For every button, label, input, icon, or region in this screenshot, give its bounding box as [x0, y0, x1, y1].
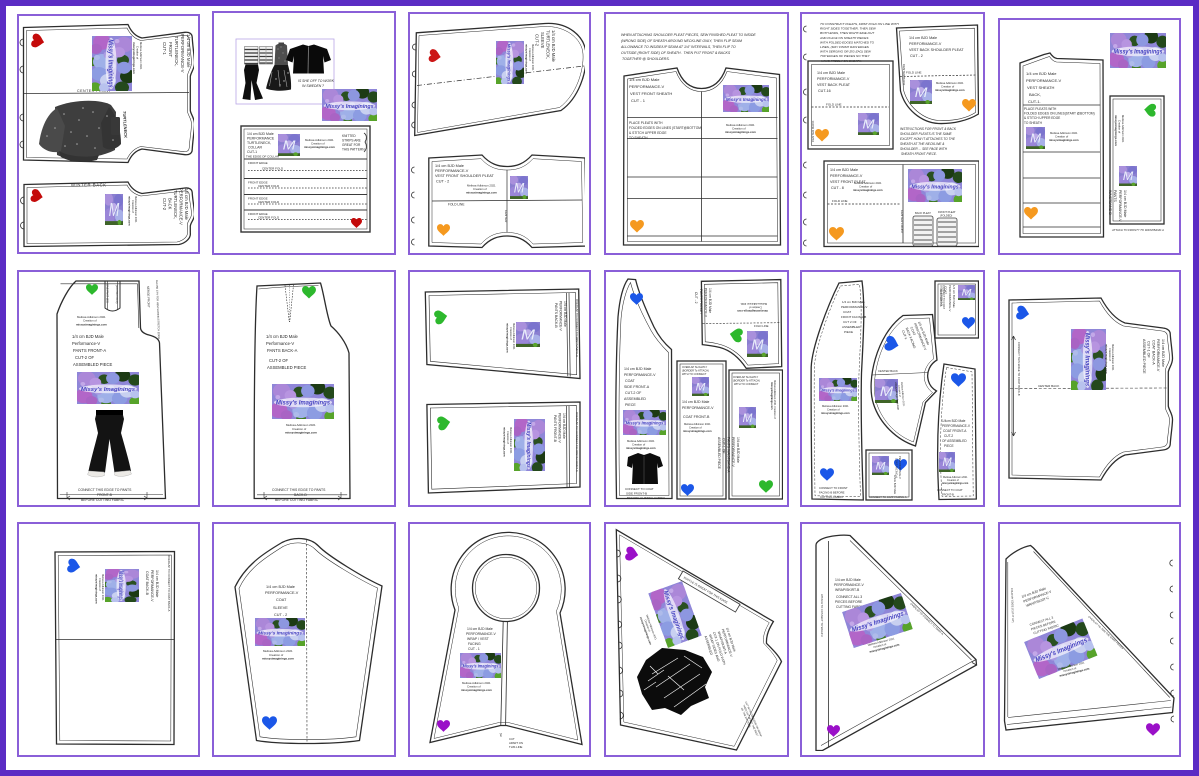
- svg-text:missysimaginings.com: missysimaginings.com: [132, 42, 136, 74]
- svg-text:INSTRUCTIONS FOR FRONT & BACK: INSTRUCTIONS FOR FRONT & BACK: [900, 127, 957, 131]
- svg-text:Creation of: Creation of: [749, 306, 762, 310]
- svg-text:ONE PANT LEG: ONE PANT LEG: [106, 284, 110, 303]
- svg-text:missysimaginings.com: missysimaginings.com: [127, 196, 131, 226]
- svg-text:FOLD LINE: FOLD LINE: [832, 199, 848, 203]
- svg-text:CUT-2: CUT-2: [535, 34, 540, 47]
- svg-text:Melissa Adkinson 2021: Melissa Adkinson 2021: [1121, 115, 1125, 143]
- svg-text:FOLD LINE: FOLD LINE: [906, 71, 922, 75]
- svg-text:Creation of: Creation of: [632, 442, 645, 446]
- svg-text:STRIPS ARE: STRIPS ARE: [342, 139, 361, 143]
- svg-text:CUT - 1: CUT - 1: [468, 647, 480, 651]
- svg-text:PERFORMANCE-V: PERFORMANCE-V: [817, 77, 850, 81]
- svg-text:Creation of: Creation of: [506, 431, 510, 444]
- svg-text:missysimaginings.com: missysimaginings.com: [770, 382, 773, 410]
- svg-text:PLACE PLEATS WITH: PLACE PLEATS WITH: [1024, 107, 1057, 111]
- svg-text:FRONT-B: FRONT-B: [97, 493, 113, 497]
- svg-text:missysimaginings.com: missysimaginings.com: [461, 688, 492, 692]
- svg-text:Creation of: Creation of: [1108, 348, 1112, 361]
- svg-text:PIECES BEFORE: PIECES BEFORE: [835, 600, 863, 604]
- svg-text:BACK: BACK: [168, 198, 173, 210]
- svg-text:CUT-2 OF: CUT-2 OF: [75, 355, 95, 360]
- svg-text:PERFORMANCE-V: PERFORMANCE-V: [898, 456, 902, 479]
- svg-text:PERFORMANCE-V: PERFORMANCE-V: [682, 406, 714, 410]
- svg-text:VEST BACK PLEAT: VEST BACK PLEAT: [817, 83, 851, 87]
- svg-text:CUT-16: CUT-16: [818, 89, 831, 93]
- svg-text:1/4 cm BJD Male: 1/4 cm BJD Male: [1123, 190, 1127, 217]
- svg-text:COAT BACK-A: COAT BACK-A: [1151, 340, 1155, 365]
- svg-text:BOTH ENDS, THEN RIGHT-SIDE-OUT: BOTH ENDS, THEN RIGHT-SIDE-OUT: [820, 31, 875, 35]
- svg-text:1/4 cm BJD Male: 1/4 cm BJD Male: [1026, 71, 1057, 76]
- svg-text:Creation of: Creation of: [941, 84, 954, 88]
- svg-text:CENTER FOLD: CENTER FOLD: [258, 184, 280, 188]
- svg-text:IN SWEDEN ?: IN SWEDEN ?: [302, 84, 324, 88]
- svg-text:missysimaginings.com: missysimaginings.com: [94, 574, 98, 604]
- svg-text:missysimaginings.com: missysimaginings.com: [1049, 138, 1079, 142]
- svg-text:1/4 cm BJD Male: 1/4 cm BJD Male: [563, 301, 567, 327]
- svg-text:WHEN ATTACHING SHOULDER PLEAT: WHEN ATTACHING SHOULDER PLEAT PIECES, SE…: [621, 33, 756, 37]
- svg-text:WITH FOLDED EDGES MATCHED TO: WITH FOLDED EDGES MATCHED TO: [820, 40, 875, 44]
- svg-text:FOLDED EDGES ON LINES (START@B: FOLDED EDGES ON LINES (START@BOTTOM): [629, 126, 702, 130]
- svg-text:SHOULDER ... SEE PAGE WITH: SHOULDER ... SEE PAGE WITH: [900, 147, 948, 151]
- svg-text:PERFORMANCE-V: PERFORMANCE-V: [629, 84, 664, 89]
- svg-text:OVERLAP SLIGHTLY: OVERLAP SLIGHTLY: [733, 375, 759, 379]
- svg-text:Creation of: Creation of: [827, 407, 840, 411]
- svg-text:FRONT: FRONT: [168, 42, 173, 57]
- svg-text:ATTACH TO CONNECT TO WRAP-: ATTACH TO CONNECT TO WRAP-C: [820, 594, 824, 637]
- svg-text:COAT BACK-B: COAT BACK-B: [145, 571, 149, 596]
- svg-text:CUT-1 OF: CUT-1 OF: [1147, 341, 1151, 359]
- svg-text:RIGHT SIDES TOGETHER, THEN SEW: RIGHT SIDES TOGETHER, THEN SEW: [820, 27, 877, 31]
- svg-text:RUFFLE IS GREAT FOR THIS EDGE: RUFFLE IS GREAT FOR THIS EDGE: [683, 576, 728, 605]
- svg-text:FRONT-B: FRONT-B: [942, 492, 954, 496]
- svg-text:missysimaginings.com: missysimaginings.com: [683, 429, 712, 433]
- svg-text:1/4 cm BJD Male: 1/4 cm BJD Male: [817, 71, 845, 75]
- svg-text:OVERLAP TO CONNECT TO PANT: OVERLAP TO CONNECT TO PANTS FRONT-A: [575, 412, 579, 472]
- svg-text:BEFORE CUTTING FABRIC: BEFORE CUTTING FABRIC: [627, 496, 666, 500]
- svg-text:ASSEMBLED PIECE: ASSEMBLED PIECE: [1142, 339, 1146, 374]
- svg-text:PANTS: PANTS: [1113, 190, 1117, 202]
- svg-text:(BORDER To ATTACH): (BORDER To ATTACH): [733, 379, 760, 383]
- svg-text:WRAP / VEST: WRAP / VEST: [467, 637, 489, 641]
- svg-text:FOLD LINE: FOLD LINE: [826, 103, 842, 107]
- svg-text:PERFORMANCE-V: PERFORMANCE-V: [841, 305, 867, 309]
- svg-text:CUT-1: CUT-1: [247, 150, 257, 154]
- svg-text:1/4 cm BJD Male: 1/4 cm BJD Male: [562, 413, 566, 439]
- svg-text:BACK PLEAT: BACK PLEAT: [915, 211, 931, 215]
- svg-text:CONNECT TO POCKET TO SIDE OF P: CONNECT TO POCKET TO SIDE OF PANTS: [783, 284, 784, 333]
- svg-text:COAT FRONT-B: COAT FRONT-B: [683, 415, 710, 419]
- svg-text:PANTS FRONT-A: PANTS FRONT-A: [73, 348, 106, 353]
- svg-text:CONNECT THIS EDGE TO PANTS: CONNECT THIS EDGE TO PANTS: [78, 488, 132, 492]
- svg-text:WITH TO CONNECT: WITH TO CONNECT: [682, 372, 707, 376]
- svg-text:CENTER FRONT: CENTER FRONT: [900, 210, 904, 234]
- svg-text:1/4 cm BJD Male: 1/4 cm BJD Male: [1161, 339, 1165, 367]
- svg-text:CENTER BACK: CENTER BACK: [902, 64, 906, 85]
- svg-text:Creation of: Creation of: [859, 184, 872, 188]
- svg-text:CUT-2 OF: CUT-2 OF: [269, 358, 289, 363]
- svg-text:1/4 cm BJD Male: 1/4 cm BJD Male: [551, 30, 556, 63]
- svg-text:CUT-2 OF: CUT-2 OF: [625, 391, 642, 395]
- svg-text:THIS PATTERN: THIS PATTERN: [342, 148, 365, 152]
- svg-text:OF ASSEMBLED: OF ASSEMBLED: [942, 439, 967, 443]
- svg-text:missysimaginings.com: missysimaginings.com: [304, 145, 335, 149]
- svg-text:missysimaginings.com: missysimaginings.com: [853, 188, 883, 192]
- svg-text:Melissa Adkinson 2021: Melissa Adkinson 2021: [627, 439, 655, 443]
- svg-text:(WRONG SIDE) OF SHEATH AROUND: (WRONG SIDE) OF SHEATH AROUND NECKLINE O…: [621, 39, 742, 43]
- svg-text:missysimaginings.com: missysimaginings.com: [1114, 115, 1118, 146]
- svg-text:1/4 cm BJD Male: 1/4 cm BJD Male: [624, 367, 651, 371]
- svg-text:PERFORMANCE-V: PERFORMANCE-V: [265, 591, 299, 595]
- svg-text:BEFORE CUTTING FABRIC: BEFORE CUTTING FABRIC: [81, 498, 125, 501]
- svg-text:THE EDGE OF COLLAR: THE EDGE OF COLLAR: [246, 155, 280, 159]
- svg-text:PERFORMANCE-V: PERFORMANCE-V: [1026, 78, 1061, 83]
- svg-text:missysimaginings.com: missysimaginings.com: [466, 191, 497, 195]
- svg-text:1/4 cm BJD Male: 1/4 cm BJD Male: [842, 300, 865, 304]
- svg-text:SLEEVE: SLEEVE: [540, 32, 545, 49]
- svg-text:Melissa Adkinson 2021: Melissa Adkinson 2021: [740, 302, 767, 306]
- svg-text:BACK,: BACK,: [1029, 92, 1041, 97]
- svg-text:WRAP/SKIRT-B: WRAP/SKIRT-B: [835, 588, 860, 592]
- svg-text:TURTLENECK,: TURTLENECK,: [247, 141, 271, 145]
- svg-text:VEST BACK SHOULDER PLEAT: VEST BACK SHOULDER PLEAT: [909, 48, 964, 52]
- svg-text:TURTLENECK,: TURTLENECK,: [174, 36, 179, 66]
- svg-text:CENTER: CENTER: [504, 210, 508, 223]
- svg-text:1/4 cm BJD Male: 1/4 cm BJD Male: [708, 288, 712, 313]
- svg-text:WITH SERGING OR ZIG-ZAG) SEW: WITH SERGING OR ZIG-ZAG) SEW: [820, 50, 872, 54]
- svg-text:ASSEMBLED: ASSEMBLED: [624, 397, 646, 401]
- svg-text:missysimaginings.com: missysimaginings.com: [524, 44, 528, 74]
- svg-text:1/4cm BJD Male: 1/4cm BJD Male: [942, 419, 966, 423]
- svg-text:(LOOSE FOLD): (LOOSE FOLD): [115, 285, 119, 303]
- svg-text:PERFORMANCE-V: PERFORMANCE-V: [466, 632, 497, 636]
- svg-text:CENTER FOLD: CENTER FOLD: [262, 167, 284, 171]
- svg-text:EXCEPT HOW IT ATTACHES TO THE: EXCEPT HOW IT ATTACHES TO THE: [900, 137, 956, 141]
- svg-text:1/4 cm BJD Male: 1/4 cm BJD Male: [186, 34, 191, 68]
- svg-text:CUTTING FABRIC: CUTTING FABRIC: [820, 495, 843, 499]
- svg-text:ASSEMBLED PIECE: ASSEMBLED PIECE: [267, 365, 307, 370]
- svg-text:1/4 cm BJD Male: 1/4 cm BJD Male: [629, 77, 660, 82]
- svg-text:FACING-B BEFORE: FACING-B BEFORE: [819, 490, 845, 494]
- svg-text:missysimaginings.com: missysimaginings.com: [502, 427, 506, 457]
- svg-text:CENTER BACK: CENTER BACK: [1038, 384, 1059, 388]
- svg-text:CENTER FOLD: CENTER FOLD: [258, 200, 280, 204]
- svg-text:CONNECT ALL 3: CONNECT ALL 3: [836, 595, 862, 599]
- svg-text:1/4 cm BJD Male: 1/4 cm BJD Male: [909, 36, 937, 40]
- svg-text:ALLOW 10% FOR HEM SHRINK/STRET: ALLOW 10% FOR HEM SHRINK/STRETCH EDGE: [155, 280, 161, 340]
- svg-text:PANTS FRONT-B: PANTS FRONT-B: [553, 415, 557, 443]
- svg-text:KNITTED: KNITTED: [342, 134, 356, 138]
- svg-text:SHOULDER PLEATS IS THE SAME: SHOULDER PLEATS IS THE SAME: [900, 132, 953, 136]
- svg-text:CUT-2: CUT-2: [944, 434, 953, 438]
- svg-text:WITH TO CONNECT: WITH TO CONNECT: [734, 382, 759, 386]
- svg-text:missysimaginings.com: missysimaginings.com: [725, 130, 756, 134]
- svg-text:1/4 cm BJD Male: 1/4 cm BJD Male: [247, 132, 274, 136]
- svg-text:SHEATH FRONT PIECE.: SHEATH FRONT PIECE.: [901, 152, 937, 156]
- svg-text:FRONT FACING-B: FRONT FACING-B: [841, 315, 866, 319]
- svg-text:CUT-1.: CUT-1.: [1028, 99, 1041, 104]
- svg-text:PERFORMANCE-V: PERFORMANCE-V: [1156, 339, 1160, 372]
- svg-text:TOP EDGES OF PIECES SO THEY: TOP EDGES OF PIECES SO THEY: [820, 54, 871, 58]
- svg-text:missysimaginings.com: missysimaginings.com: [1104, 344, 1108, 374]
- svg-text:Melissa Adkinson 2021: Melissa Adkinson 2021: [1050, 131, 1078, 135]
- svg-text:OVERLAP TO CONNECT TO SKIR: OVERLAP TO CONNECT TO SKIRT-A: [909, 602, 944, 636]
- svg-text:& STITCH UPPER EDGE: & STITCH UPPER EDGE: [629, 131, 667, 135]
- svg-text:TURTLENECK: TURTLENECK: [122, 111, 128, 139]
- svg-text:CUT - 2: CUT - 2: [910, 54, 923, 58]
- svg-text:FOLDED EDGES ON LINES(START @B: FOLDED EDGES ON LINES(START @BOTTOM): [1024, 112, 1095, 116]
- svg-text:1/4 cm BJD Male: 1/4 cm BJD Male: [266, 585, 295, 589]
- svg-text:ASSEMBLED PIECE: ASSEMBLED PIECE: [73, 362, 113, 367]
- svg-text:PERFORMANCE: PERFORMANCE: [247, 137, 275, 141]
- svg-text:SERGE FRONT: SERGE FRONT: [146, 286, 151, 308]
- svg-text:1/4 cm BJD Male: 1/4 cm BJD Male: [736, 437, 740, 463]
- svg-text:Melissa Adkinson 2021: Melissa Adkinson 2021: [139, 42, 143, 70]
- svg-text:FRONT PLEAT: FRONT PLEAT: [938, 210, 956, 214]
- svg-text:missysimaginings.com: missysimaginings.com: [737, 309, 768, 313]
- svg-text:TURTLENECK,: TURTLENECK,: [173, 190, 178, 219]
- svg-text:CUT-2: CUT-2: [162, 198, 167, 211]
- svg-text:PERFORMANCE-V: PERFORMANCE-V: [558, 301, 562, 332]
- svg-text:OVERLAP TO CONNECT TO COAT: OVERLAP TO CONNECT TO COAT BACK-A: [167, 555, 171, 611]
- svg-text:PERFORMANCE-V: PERFORMANCE-V: [830, 174, 863, 178]
- svg-text:SIDE FRONT-B: SIDE FRONT-B: [939, 285, 943, 306]
- svg-text:BEFORE CUTTING FABRIC: BEFORE CUTTING FABRIC: [275, 498, 319, 501]
- svg-text:ALLOWANCE TO INSIDE/UP SEAM AT: ALLOWANCE TO INSIDE/UP SEAM AT 1/4" INTE…: [620, 45, 736, 49]
- svg-text:missysimaginings.com: missysimaginings.com: [942, 482, 968, 485]
- svg-text:CUT - 2: CUT - 2: [274, 613, 287, 617]
- svg-text:CONNECT THIS EDGE TO COAT BA: CONNECT THIS EDGE TO COAT BACK-B: [1017, 342, 1021, 396]
- svg-text:Melissa Adkinson 2021: Melissa Adkinson 2021: [684, 422, 711, 426]
- svg-text:TO SHEATH: TO SHEATH: [629, 136, 648, 140]
- svg-text:WAISTBAND-B: WAISTBAND-B: [1108, 190, 1112, 215]
- svg-text:PERFORMANCE-V: PERFORMANCE-V: [942, 424, 971, 428]
- svg-text:CONNECT THIS EDGE TO PANTS: CONNECT THIS EDGE TO PANTS: [272, 488, 326, 492]
- svg-text:Performance-V: Performance-V: [266, 341, 294, 346]
- svg-text:PERFORMANCE-V: PERFORMANCE-V: [180, 34, 185, 73]
- svg-text:SLEEVE: SLEEVE: [273, 606, 288, 610]
- svg-text:& STITCH UPPER EDGE: & STITCH UPPER EDGE: [1024, 116, 1060, 120]
- svg-text:PLACE PLEATS WITH: PLACE PLEATS WITH: [629, 121, 663, 125]
- svg-text:TURTLENECK,: TURTLENECK,: [546, 30, 551, 59]
- svg-text:WINTER BACK: WINTER BACK: [71, 183, 107, 188]
- svg-text:SIDE FRONT-B: SIDE FRONT-B: [626, 491, 647, 495]
- svg-text:1/4 cm BJD Male: 1/4 cm BJD Male: [72, 334, 105, 339]
- svg-text:missysimaginings.com: missysimaginings.com: [285, 431, 317, 435]
- svg-text:FOLD LINE: FOLD LINE: [754, 324, 769, 328]
- svg-text:PERFORMANCE-V: PERFORMANCE-V: [1118, 190, 1122, 222]
- svg-text:missysimaginings.com: missysimaginings.com: [505, 323, 509, 353]
- svg-text:CUT 2 OF: CUT 2 OF: [843, 320, 857, 324]
- svg-text:FOLD LINE: FOLD LINE: [448, 203, 464, 207]
- svg-text:CUT - 8: CUT - 8: [831, 186, 844, 190]
- svg-text:COAT FRONT-A: COAT FRONT-A: [943, 429, 967, 433]
- svg-text:PIECE: PIECE: [625, 403, 636, 407]
- svg-text:1/4 cm BJD Male: 1/4 cm BJD Male: [435, 164, 464, 168]
- svg-text:1/4 cm BJD Male: 1/4 cm BJD Male: [266, 334, 299, 339]
- svg-text:CENTER BACK: CENTER BACK: [811, 121, 815, 142]
- svg-text:missysimaginings.com: missysimaginings.com: [626, 446, 656, 450]
- svg-text:VEST FRONT SHOULDER PLEAT: VEST FRONT SHOULDER PLEAT: [435, 174, 495, 178]
- svg-text:OVERLAP TO CONNECT TO PANT: OVERLAP TO CONNECT TO PANTS BACK-A: [575, 299, 579, 357]
- svg-text:PERFORMANCE-V: PERFORMANCE-V: [150, 570, 154, 602]
- svg-text:missysimaginings.com: missysimaginings.com: [262, 657, 294, 661]
- svg-text:missysimaginings.com: missysimaginings.com: [935, 88, 965, 92]
- svg-text:CUT-1: CUT-1: [162, 42, 167, 55]
- svg-text:OVERLAP SLIGHTLY: OVERLAP SLIGHTLY: [682, 365, 708, 369]
- svg-text:(FOLDED): (FOLDED): [940, 213, 952, 217]
- svg-text:PERFORMANCE-V: PERFORMANCE-V: [731, 437, 735, 468]
- svg-text:Melissa Adkinson 2021: Melissa Adkinson 2021: [822, 404, 849, 408]
- svg-text:Creation of: Creation of: [98, 578, 102, 591]
- svg-text:PERFORMANCE-V: PERFORMANCE-V: [834, 583, 865, 587]
- svg-text:1/4 cm BJD Male: 1/4 cm BJD Male: [155, 570, 159, 597]
- svg-text:Creation of: Creation of: [689, 425, 702, 429]
- svg-text:COLLAR: COLLAR: [248, 146, 262, 150]
- svg-text:CUT - 2: CUT - 2: [694, 292, 698, 304]
- svg-text:LINES, (MAY FINISH RAW EDGES: LINES, (MAY FINISH RAW EDGES: [820, 45, 870, 49]
- svg-text:AND PLACE ON SHEATH PIECES: AND PLACE ON SHEATH PIECES: [819, 36, 869, 40]
- svg-text:PANTS BACK-B: PANTS BACK-B: [554, 303, 558, 328]
- svg-text:OUTSIDE (RIGHT SIDE) OF SHEATH: OUTSIDE (RIGHT SIDE) OF SHEATH . THEN PU…: [621, 51, 731, 55]
- svg-text:1/4 cm BJD Male: 1/4 cm BJD Male: [467, 627, 493, 631]
- svg-text:Performance-V: Performance-V: [72, 341, 100, 346]
- svg-text:COAT: COAT: [276, 598, 287, 602]
- svg-text:missysimaginings.com: missysimaginings.com: [76, 322, 107, 326]
- svg-text:FACING: FACING: [468, 642, 481, 646]
- svg-text:VEST FRONT SHEATH: VEST FRONT SHEATH: [630, 91, 672, 96]
- svg-text:✂: ✂: [497, 733, 503, 737]
- svg-text:TO SHEATH: TO SHEATH: [1024, 121, 1043, 125]
- svg-text:1/4 cm BJD Male: 1/4 cm BJD Male: [830, 168, 858, 172]
- svg-text:(BORDER To ATTACH): (BORDER To ATTACH): [682, 369, 709, 373]
- svg-text:PERFORMANCE-V: PERFORMANCE-V: [624, 373, 656, 377]
- svg-text:missysimaginings.com: missysimaginings.com: [821, 411, 850, 415]
- svg-text:Creation of: Creation of: [528, 48, 532, 61]
- svg-text:ASSEMBLED PIECE: ASSEMBLED PIECE: [717, 437, 721, 470]
- svg-text:PERFORMANCE-V: PERFORMANCE-V: [909, 42, 942, 46]
- svg-text:COAT FACING-A: COAT FACING-A: [895, 458, 899, 478]
- svg-text:PIECE: PIECE: [844, 330, 853, 334]
- svg-text:1/4cm BJD Male: 1/4cm BJD Male: [893, 475, 897, 495]
- svg-text:COAT: COAT: [625, 379, 636, 383]
- svg-text:CUT - 2: CUT - 2: [436, 180, 449, 184]
- svg-text:Creation of: Creation of: [131, 200, 135, 213]
- svg-text:GREAT FOR: GREAT FOR: [342, 143, 361, 147]
- svg-text:ATTACH TO FRONT? TO WAISTBAND: ATTACH TO FRONT? TO WAISTBAND A: [1111, 228, 1164, 232]
- svg-text:IS SHE OFF TO WORK: IS SHE OFF TO WORK: [298, 79, 335, 83]
- svg-text:PANTS POCKET: PANTS POCKET: [699, 289, 703, 314]
- svg-text:Creation of: Creation of: [1055, 134, 1068, 138]
- svg-text:1/4 cm BJD Male: 1/4 cm BJD Male: [682, 400, 709, 404]
- svg-text:ASSEMBLED: ASSEMBLED: [842, 325, 861, 329]
- svg-text:SIDE FRONT-A: SIDE FRONT-A: [624, 385, 650, 389]
- svg-text:Creation of: Creation of: [509, 327, 513, 340]
- svg-text:PERFORMANCE-V: PERFORMANCE-V: [703, 288, 707, 318]
- svg-text:BACK-B: BACK-B: [294, 493, 307, 497]
- svg-text:SHEATH AT THE NECKLINE &: SHEATH AT THE NECKLINE &: [900, 142, 944, 146]
- svg-text:Melissa Adkinson 2021: Melissa Adkinson 2021: [936, 81, 964, 85]
- svg-text:PERFORMANCE-V: PERFORMANCE-V: [557, 413, 561, 444]
- svg-text:1/4 cm BJD Male: 1/4 cm BJD Male: [835, 578, 861, 582]
- svg-text:PIECE: PIECE: [944, 444, 954, 448]
- svg-text:COAT: COAT: [843, 310, 851, 314]
- svg-text:Melissa Adkinson 2021: Melissa Adkinson 2021: [854, 181, 882, 185]
- svg-text:CONNECT TO COAT FACING-A: CONNECT TO COAT FACING-A: [869, 495, 907, 499]
- svg-text:PERFORMANCE-V: PERFORMANCE-V: [179, 188, 184, 225]
- svg-text:TO CONSTRUCT PLEATS, FIRST F: TO CONSTRUCT PLEATS, FIRST FOLD ON LINE …: [820, 22, 900, 26]
- svg-text:CONNECT TO FRONT: CONNECT TO FRONT: [819, 486, 848, 490]
- svg-text:PERFORMANCE-V: PERFORMANCE-V: [435, 169, 469, 173]
- svg-text:FOLD MY EDGE (CUT-IT UP): FOLD MY EDGE (CUT-IT UP): [1010, 588, 1015, 623]
- svg-text:PANTS WAISTBAND-A: PANTS WAISTBAND-A: [726, 437, 730, 473]
- svg-text:CONNECT TO COAT: CONNECT TO COAT: [625, 487, 654, 491]
- svg-text:CONNECT TO COAT: CONNECT TO COAT: [937, 488, 963, 492]
- svg-text:1/4 cm BJD Male: 1/4 cm BJD Male: [184, 188, 189, 221]
- svg-text:CENTER FOLD: CENTER FOLD: [258, 216, 280, 220]
- svg-text:VEST SHEATH: VEST SHEATH: [1027, 85, 1055, 90]
- svg-text:CENTER BACK: CENTER BACK: [878, 369, 898, 373]
- svg-text:CUT-1 OF: CUT-1 OF: [722, 438, 726, 453]
- svg-text:TOGETHER @ SHOULDERS.: TOGETHER @ SHOULDERS.: [622, 57, 670, 61]
- svg-text:FRONT EDGE: FRONT EDGE: [248, 161, 268, 165]
- svg-text:THIS LINE: THIS LINE: [509, 745, 523, 749]
- svg-text:PANTS BACK-A: PANTS BACK-A: [267, 348, 298, 353]
- svg-text:CUT - 1: CUT - 1: [631, 98, 646, 103]
